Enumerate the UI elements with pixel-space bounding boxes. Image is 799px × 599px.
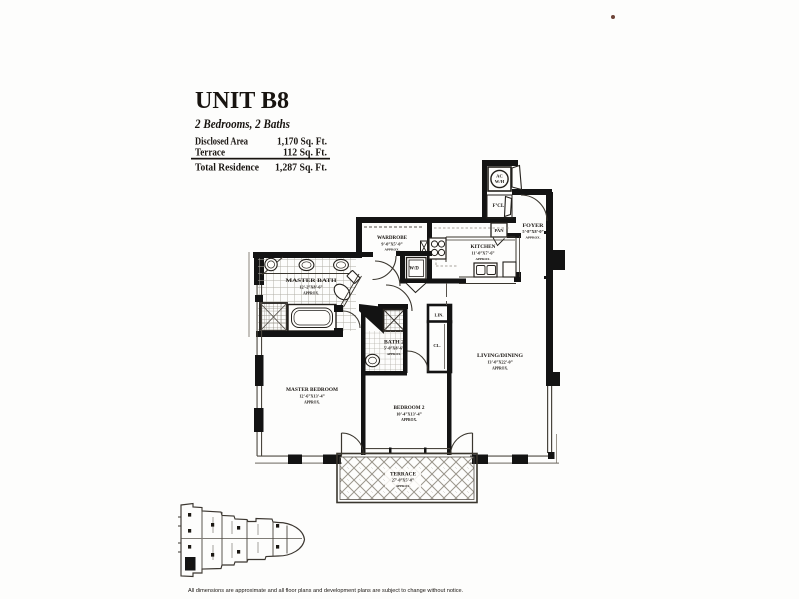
svg-text:5’-8”X8’-0”: 5’-8”X8’-0” [522,229,543,234]
svg-text:WARDROBE: WARDROBE [377,235,408,241]
svg-text:B: B [187,560,193,570]
svg-text:LIVING/DINING: LIVING/DINING [477,353,524,359]
svg-text:13’-0”X22’-0”: 13’-0”X22’-0” [487,360,512,365]
svg-text:10’-4”X13’-4”: 10’-4”X13’-4” [396,412,421,417]
svg-text:Terrace: Terrace [195,148,226,159]
svg-text:APPROX.: APPROX. [492,367,508,371]
svg-text:KITCHEN: KITCHEN [471,244,496,250]
svg-text:F’CL.: F’CL. [493,204,507,209]
svg-text:LIN.: LIN. [435,313,444,318]
svg-text:9’-0”X5’-0”: 9’-0”X5’-0” [381,242,402,247]
svg-text:APPROX.: APPROX. [526,236,541,240]
svg-text:5’-0”X8’-6”: 5’-0”X8’-6” [384,346,404,351]
svg-text:12’-2”X8’-6”: 12’-2”X8’-6” [299,285,322,290]
svg-text:1,287 Sq. Ft.: 1,287 Sq. Ft. [275,163,327,174]
svg-text:2 Bedrooms, 2 Baths: 2 Bedrooms, 2 Baths [194,117,290,131]
svg-text:APPROX.: APPROX. [401,418,417,422]
svg-text:All dimensions are approximate: All dimensions are approximate and all f… [188,588,464,594]
svg-text:APPROX.: APPROX. [396,484,411,488]
svg-text:MASTER BATH: MASTER BATH [286,278,338,284]
svg-text:1,170 Sq. Ft.: 1,170 Sq. Ft. [277,137,327,148]
svg-text:PAN: PAN [494,228,504,233]
svg-text:W/D: W/D [409,267,419,272]
svg-text:APPROX.: APPROX. [476,257,491,261]
svg-text:CL.: CL. [433,343,440,348]
svg-text:Total Residence: Total Residence [195,163,260,174]
svg-text:APPROX.: APPROX. [304,401,320,405]
svg-text:UNIT B8: UNIT B8 [195,88,289,114]
svg-text:11’-0”X7’-6”: 11’-0”X7’-6” [471,251,494,256]
svg-text:Disclosed Area: Disclosed Area [195,137,248,148]
svg-text:W/H: W/H [495,179,505,184]
svg-text:APPROX.: APPROX. [387,352,402,356]
svg-text:12’-6”X13’-4”: 12’-6”X13’-4” [299,394,324,399]
svg-text:BEDROOM 2: BEDROOM 2 [394,405,425,411]
svg-text:APPROX.: APPROX. [385,248,400,252]
svg-text:APPROX.: APPROX. [303,292,319,296]
svg-text:112 Sq. Ft.: 112 Sq. Ft. [283,148,327,159]
svg-text:27’-0”X5’-0”: 27’-0”X5’-0” [392,478,414,483]
svg-text:MASTER BEDROOM: MASTER BEDROOM [286,387,338,393]
